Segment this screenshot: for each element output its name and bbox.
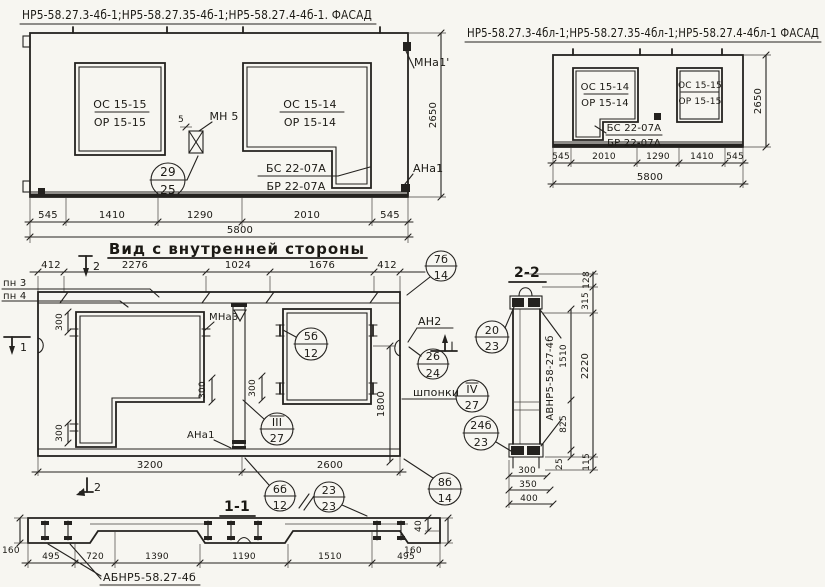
- section-1-1: 1-1 160 160 40: [2, 499, 453, 585]
- dim-label: 350: [519, 480, 537, 490]
- dim-label: 3200: [137, 460, 163, 471]
- section-marker-label: 1: [20, 341, 27, 354]
- callout-den: 24: [426, 367, 440, 380]
- dim-label: 1410: [690, 152, 714, 162]
- dim-label: 300: [55, 424, 65, 442]
- section-cut-mark: [431, 334, 457, 351]
- anchor-label: АНа1: [187, 430, 215, 441]
- dim-label: 1290: [187, 210, 213, 221]
- dim-label: 545: [380, 210, 400, 221]
- drawing-canvas: НР5-58.27.3-4б-1;НР5-58.27.35-4б-1;НР5-5…: [0, 0, 825, 587]
- dim-label: 1390: [145, 552, 169, 562]
- blueprint-sheet: НР5-58.27.3-4б-1;НР5-58.27.35-4б-1;НР5-5…: [0, 0, 825, 587]
- callout-den: 12: [273, 499, 287, 512]
- callout-num: 7б: [434, 253, 448, 266]
- inner-view-title: Вид с внутренней стороны: [109, 240, 365, 258]
- window-mark: ОР 15-15: [678, 97, 721, 107]
- window-mark: ОС 15-15: [93, 98, 146, 111]
- dim-label: 2600: [317, 460, 343, 471]
- dim-label: 545: [38, 210, 58, 221]
- callout-num: 29: [160, 165, 176, 179]
- window-mark: ОС 15-15: [678, 81, 722, 91]
- dim-label: 495: [42, 552, 60, 562]
- callout-26-24: 26 24: [409, 347, 449, 380]
- inner-view: Вид с внутренней стороны 412 2276 1024 1…: [2, 240, 511, 516]
- window-opening: [76, 312, 204, 447]
- dim-label: 400: [520, 494, 538, 504]
- window-mark: ОР 15-14: [581, 98, 629, 109]
- callout-den: 23: [474, 436, 488, 449]
- dim-label: 1510: [318, 552, 342, 562]
- callout-den: 25: [160, 183, 176, 197]
- dim-label: 1676: [309, 260, 335, 271]
- window-mark: ОР 15-15: [94, 116, 146, 129]
- window-opening: [283, 309, 371, 404]
- balcony-mark: БР 22-07А: [607, 138, 661, 149]
- embed-label: МН 5: [209, 110, 238, 123]
- callout-iv-27: IV 27: [455, 380, 489, 412]
- callout-den: 14: [438, 492, 452, 505]
- dim-label: 300: [55, 313, 65, 331]
- dim-label: 1510: [559, 344, 569, 368]
- section-title: 1-1: [224, 499, 250, 515]
- balcony-mark: БР 22-07А: [267, 180, 326, 193]
- anchor-label: АН2: [418, 315, 441, 328]
- callout-den: 23: [322, 500, 336, 513]
- facade-left-title: НР5-58.27.3-4б-1;НР5-58.27.35-4б-1;НР5-5…: [22, 7, 372, 22]
- window-mark: ОР 15-14: [284, 116, 336, 129]
- section-2-2: 2-2 АВНР5-58-27-4б 20 23 1510 825 2: [475, 265, 598, 508]
- facade-left: НР5-58.27.3-4б-1;НР5-58.27.35-4б-1;НР5-5…: [20, 7, 450, 243]
- facade-right: НР5-58.27.3-4бл-1;НР5-58.27.35-4бл-1;НР5…: [465, 25, 821, 188]
- jamb-marks: [70, 329, 210, 431]
- balcony-mark: БС 22-07А: [266, 162, 326, 175]
- anchor-label: МНа1': [414, 56, 450, 69]
- callout-num: 6б: [273, 483, 287, 496]
- window-mark: ОС 15-14: [581, 82, 630, 93]
- section-marker-label: 2: [94, 481, 101, 494]
- dim-label: 5: [178, 115, 184, 125]
- callout-num: 24б: [470, 419, 491, 432]
- callout-num: 20: [485, 324, 499, 337]
- dim-label: 2650: [428, 102, 439, 128]
- window-mark: ОС 15-14: [283, 98, 336, 111]
- dim-label: 1190: [232, 552, 256, 562]
- dim-label: 25: [555, 458, 565, 470]
- dim-label: 128: [582, 271, 592, 289]
- dim-label: 412: [41, 260, 61, 271]
- panel-mark: АВНР5-58-27-4б: [545, 335, 556, 420]
- dim-label: 5800: [227, 225, 253, 236]
- dim-label: 300: [518, 466, 536, 476]
- callout-num: 26: [426, 350, 440, 363]
- dim-label: 720: [86, 552, 104, 562]
- level-label: пн 4: [3, 291, 26, 302]
- dim-label: 495: [397, 552, 415, 562]
- dim-label: 545: [552, 152, 570, 162]
- dim-label: 2220: [580, 353, 591, 379]
- section-marker-1-left: 1: [4, 337, 30, 355]
- dim-label: 115: [582, 453, 592, 471]
- dim-label: 825: [559, 415, 569, 433]
- dim-label: 300: [248, 379, 258, 397]
- callout-num: 23: [322, 484, 336, 497]
- dim-label: 412: [377, 260, 397, 271]
- section-marker-2-bottom: 2: [76, 478, 101, 496]
- dim-label: 2276: [122, 260, 148, 271]
- callout-24b-23: 24б 23: [463, 416, 511, 451]
- jamb-marks: [276, 325, 377, 394]
- balcony-mark: БС 22-07А: [607, 123, 662, 134]
- dim-label: 300: [198, 381, 208, 399]
- anchor-label: МНа3: [209, 312, 238, 323]
- dim-label: 1800: [376, 391, 387, 417]
- dim-label: 545: [726, 152, 744, 162]
- callout-6b-12: 6б 12: [245, 458, 296, 512]
- anchor-plate-icon: [401, 184, 410, 192]
- callout-den: 23: [485, 340, 499, 353]
- callout-den: 27: [270, 432, 284, 445]
- dim-label: 1410: [99, 210, 125, 221]
- anchor-plate-icon: [403, 42, 411, 51]
- panel-mark: АБНР5-58.27-4б: [103, 571, 196, 584]
- middle-rib: [231, 303, 247, 450]
- embed-mark-icon: [654, 113, 661, 120]
- callout-num: IV: [466, 383, 477, 396]
- callout-5b-12: 5б 12: [283, 328, 328, 360]
- facade-right-title: НР5-58.27.3-4бл-1;НР5-58.27.35-4бл-1;НР5…: [467, 25, 819, 40]
- section-marker-label: 2: [93, 260, 100, 273]
- level-label: пн 3: [3, 278, 26, 289]
- dim-label: 1024: [225, 260, 251, 271]
- dim-label: 5800: [637, 172, 663, 183]
- callout-20-23: 20 23: [475, 307, 514, 353]
- dim-label: 160: [2, 546, 20, 556]
- dim-label: 2010: [294, 210, 320, 221]
- callout-den: 27: [465, 399, 479, 412]
- dim-label: 2010: [592, 152, 616, 162]
- callout-den: 12: [304, 347, 318, 360]
- dim-label: 315: [581, 292, 591, 310]
- callout-num: III: [272, 416, 282, 429]
- dim-label: 1290: [646, 152, 670, 162]
- callout-num: 8б: [438, 476, 452, 489]
- dim-label: 40: [414, 520, 424, 532]
- callout-den: 14: [434, 269, 448, 282]
- callout-23-23: 23 23: [313, 482, 367, 516]
- window-opening: [677, 68, 722, 122]
- callout-iii-27: III 27: [243, 400, 294, 445]
- callout-7b-14: 7б 14: [407, 251, 457, 295]
- section-title: 2-2: [514, 265, 540, 281]
- dim-label: 2650: [753, 88, 764, 114]
- lifting-loop-icon: [519, 288, 532, 296]
- callout-num: 5б: [304, 330, 318, 343]
- section-marker-2-top: 2: [79, 256, 100, 277]
- callout-29-25: 29 25: [150, 156, 198, 197]
- anchor-label: АНа1: [413, 162, 443, 175]
- keys-label: шпонки: [413, 386, 459, 399]
- callout-8b-14: 8б 14: [404, 459, 462, 505]
